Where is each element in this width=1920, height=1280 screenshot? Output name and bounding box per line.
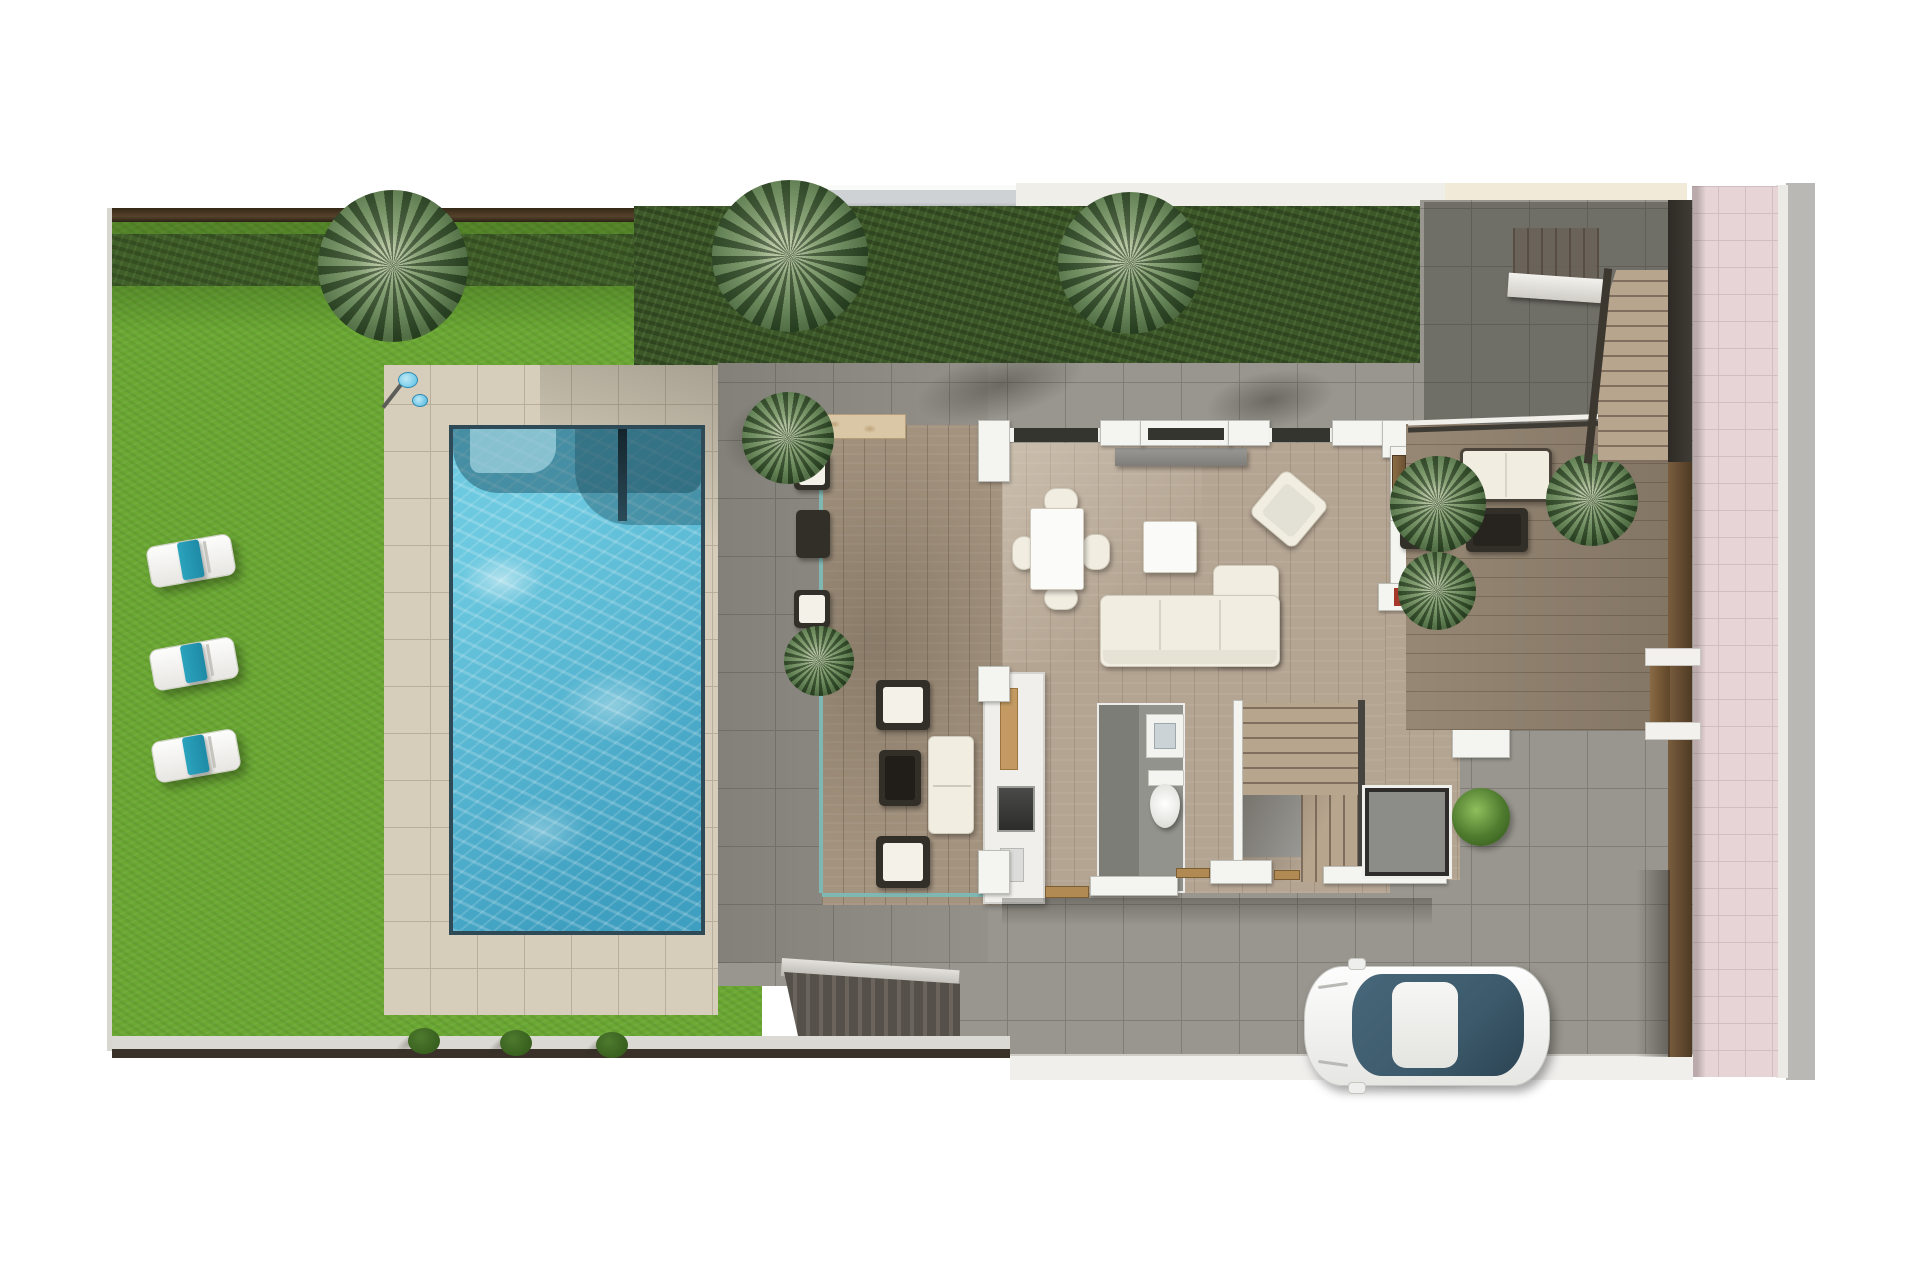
tv-console (1115, 448, 1247, 466)
wall-kitchen-pier-s (978, 850, 1010, 894)
driveway-east-shadow (1636, 870, 1670, 1057)
lounge-chair-a (876, 680, 930, 730)
house-south-shadow (1002, 898, 1432, 926)
sofa-seam (1505, 453, 1507, 497)
chair-cushion (883, 843, 923, 881)
wall-s-1 (1210, 860, 1272, 884)
pool-ladder (618, 429, 627, 521)
sofa-backrest (1103, 650, 1277, 664)
slider-door-1 (1010, 428, 1102, 442)
car-mirror-bottom (1348, 1082, 1366, 1094)
table-top (885, 756, 915, 800)
gate-door (1650, 666, 1670, 722)
lounge-table (879, 750, 921, 806)
road-strip (1786, 183, 1815, 1080)
bathroom-vanity (1146, 714, 1184, 758)
boundary-bush-1 (408, 1028, 440, 1054)
slider-door-2 (1268, 428, 1334, 442)
boundary-bush-2 (500, 1030, 532, 1056)
entry-mat (1365, 788, 1449, 876)
palm-tree-2 (712, 180, 868, 332)
gate-pillar-bottom (1645, 722, 1701, 740)
garden-edge-light (112, 1036, 1010, 1050)
wall-kitchen-pier-n (978, 666, 1010, 702)
sofa-body (1100, 595, 1280, 667)
pool-steps-notch (470, 429, 556, 473)
palm-tree-1 (318, 190, 468, 342)
fence-dark-upper (1668, 200, 1692, 462)
sofa-seam (933, 785, 971, 787)
kitchen-hob (997, 786, 1035, 832)
threshold-kitchen (1045, 886, 1089, 898)
stair-wall-dark (1358, 700, 1365, 884)
gate-pillar-top (1645, 648, 1701, 666)
palm-tree-3 (1058, 192, 1202, 334)
threshold-hall (1176, 868, 1210, 878)
stair-flight-upper (1243, 703, 1361, 799)
wall-corner-nw (978, 420, 1010, 482)
deck-chair-2 (794, 590, 830, 628)
chair-cushion (883, 687, 923, 723)
palm-tree-6 (1546, 454, 1638, 546)
wall-n-3 (1332, 420, 1384, 446)
deck-glass-rail-bottom (822, 893, 1002, 897)
wall-n-1 (1100, 420, 1144, 446)
palm-tree-7 (1398, 552, 1476, 630)
floor-plan-canvas (0, 0, 1920, 1280)
stair-stringer-white (1233, 700, 1243, 884)
entry-bush (1452, 788, 1510, 846)
side-pouf (1143, 521, 1197, 573)
car-mirror-top (1348, 958, 1366, 970)
threshold-entry (1274, 870, 1300, 880)
shower-tap-icon (412, 394, 428, 407)
shower-head-icon (398, 372, 418, 388)
pool-bench-step (575, 429, 701, 525)
palm-tree-5 (1390, 456, 1486, 552)
chair-cushion (799, 595, 825, 623)
sink-basin (1154, 723, 1176, 749)
boundary-bush-3 (596, 1032, 628, 1058)
lounge-chair-b (876, 836, 930, 888)
palm-deck-small (784, 626, 854, 696)
ext-stair-upper-flight (1513, 228, 1599, 278)
palm-tree-4 (742, 392, 834, 484)
deck-cube-table (796, 510, 830, 558)
sofa-seam (1219, 600, 1221, 650)
sofa-seam (1159, 600, 1161, 650)
dining-table (1030, 508, 1084, 590)
tv-window-glass (1148, 428, 1224, 440)
bathroom-shower-zone (1099, 705, 1139, 891)
car-roof (1392, 982, 1458, 1068)
fence-brown (1668, 462, 1692, 1057)
armchair-seat (1261, 482, 1317, 538)
dining-chair-east (1082, 534, 1110, 570)
wall-bath-south (1090, 876, 1178, 896)
lounge-sofa (928, 736, 974, 834)
wall-n-2 (1228, 420, 1270, 446)
sidewalk (1692, 186, 1778, 1077)
garden-edge-wall (112, 1049, 1010, 1058)
